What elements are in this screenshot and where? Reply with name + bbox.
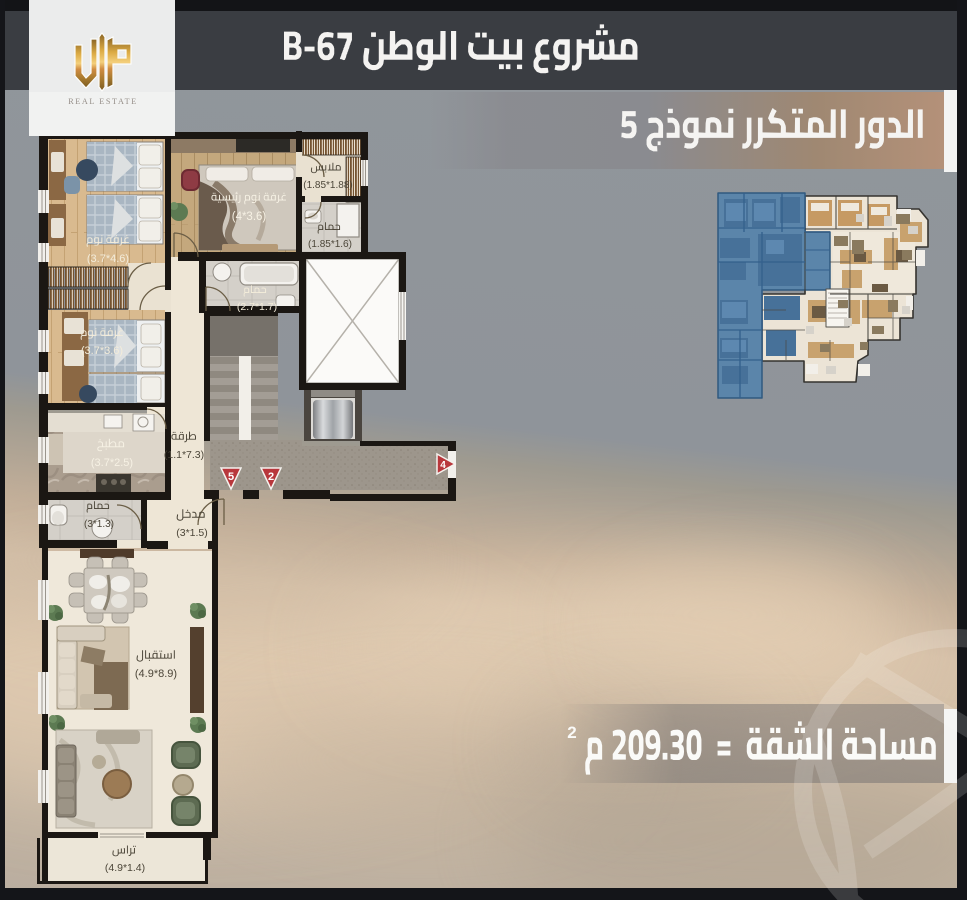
svg-text:(3.7*3.6): (3.7*3.6) xyxy=(81,345,123,357)
svg-text:5: 5 xyxy=(228,471,234,483)
svg-text:(4.9*1.4): (4.9*1.4) xyxy=(105,862,145,874)
svg-text:2: 2 xyxy=(268,471,274,483)
svg-text:(3.7*4.6): (3.7*4.6) xyxy=(87,253,129,265)
svg-text:2: 2 xyxy=(567,723,576,742)
svg-text:(1.85*1.6): (1.85*1.6) xyxy=(308,239,352,250)
svg-text:4: 4 xyxy=(440,460,446,471)
svg-text:(3.7*2.5): (3.7*2.5) xyxy=(91,457,133,469)
svg-text:(3*1.3): (3*1.3) xyxy=(84,519,114,530)
svg-text:(4*3.6): (4*3.6) xyxy=(232,211,267,223)
svg-text:(1.1*7.3): (1.1*7.3) xyxy=(164,449,204,461)
svg-text:(1.85*1.88): (1.85*1.88) xyxy=(303,180,352,191)
svg-text:(2.7*1.7): (2.7*1.7) xyxy=(237,301,277,313)
svg-text:(3*1.5): (3*1.5) xyxy=(176,527,208,539)
svg-text:REAL ESTATE: REAL ESTATE xyxy=(68,97,138,106)
svg-text:(4.9*8.9): (4.9*8.9) xyxy=(135,668,177,680)
